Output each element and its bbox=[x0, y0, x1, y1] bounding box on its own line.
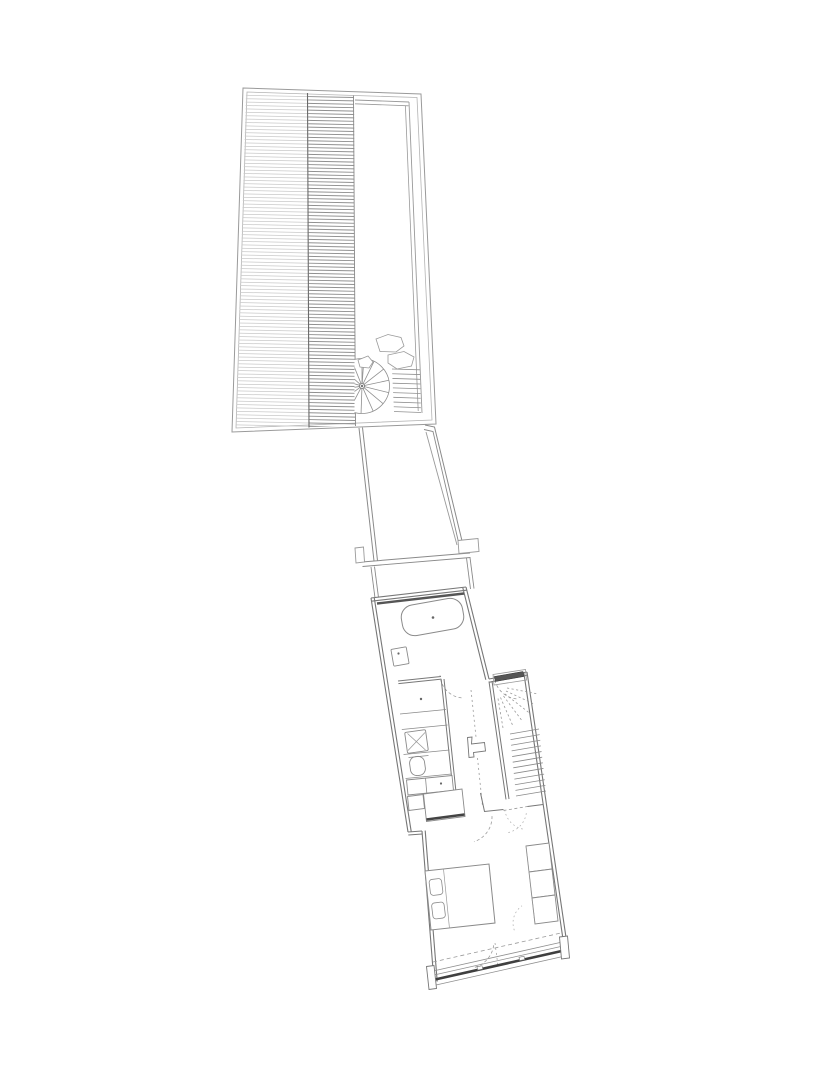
toilet bbox=[409, 756, 426, 777]
corridor-link bbox=[355, 425, 479, 598]
wall-sink-dot bbox=[397, 652, 399, 654]
bathtub-drain-dot bbox=[432, 616, 435, 619]
floor-plan-svg bbox=[0, 0, 840, 1080]
stair-winder-1 bbox=[507, 688, 538, 694]
wall-right-upper bbox=[463, 587, 489, 680]
landing-step-a bbox=[362, 553, 470, 562]
facade-line-1 bbox=[431, 942, 565, 972]
spiral-stair-post-dot bbox=[361, 385, 363, 387]
bedroom bbox=[425, 816, 558, 930]
closet-door-arc bbox=[513, 906, 522, 930]
landing-side-left bbox=[371, 567, 379, 598]
facade-glazing-dark bbox=[433, 950, 566, 980]
stair-bottom-wall-right bbox=[528, 805, 544, 807]
stair-winder-3 bbox=[505, 694, 530, 713]
bed-pillow-1 bbox=[429, 878, 443, 895]
facade-mullion-tick-2 bbox=[519, 956, 525, 960]
corridor-left-wall bbox=[359, 428, 378, 561]
stair-winder-6 bbox=[498, 699, 503, 729]
bed bbox=[425, 864, 495, 930]
stair-bottom-opening bbox=[504, 807, 528, 811]
wall-left-upper bbox=[371, 598, 411, 833]
corridor-right-wall-outer bbox=[425, 425, 463, 545]
closet-cell-3 bbox=[532, 895, 558, 924]
corridor-ramp-edge bbox=[426, 432, 457, 545]
wall-sink bbox=[391, 647, 409, 666]
roof-deck bbox=[230, 88, 436, 432]
south-facade bbox=[427, 933, 570, 990]
closet-cell-1 bbox=[526, 843, 552, 872]
facade-post-left bbox=[427, 966, 437, 990]
closet-cell-2 bbox=[529, 869, 555, 898]
hall-partition bbox=[468, 737, 486, 758]
shower-drain-dot bbox=[420, 698, 422, 700]
hall-dashed-line-1 bbox=[471, 690, 476, 737]
bathroom-bottom-wall bbox=[398, 677, 441, 684]
floor-plan-canvas bbox=[0, 0, 840, 1080]
facade-post-right bbox=[560, 936, 570, 959]
wc-cabinet-dot bbox=[440, 782, 442, 784]
rock-1 bbox=[376, 335, 404, 353]
stair-landing-dark-band bbox=[495, 672, 524, 682]
shelf-line-2 bbox=[402, 725, 448, 730]
wall-step bbox=[408, 831, 422, 835]
hallway bbox=[468, 676, 517, 806]
landing-tab-left bbox=[355, 547, 365, 563]
facade-vertical-dash bbox=[495, 943, 498, 966]
landing-tab-right bbox=[458, 539, 479, 554]
stair-winder-5 bbox=[501, 698, 513, 726]
landing-step-b bbox=[363, 558, 471, 567]
facade-dashed-line bbox=[433, 933, 561, 962]
side-box bbox=[408, 795, 425, 811]
bed-pillow-2 bbox=[431, 902, 445, 919]
landing-side-right bbox=[467, 558, 475, 589]
stair-bottom-wall-left bbox=[481, 793, 504, 812]
staircase bbox=[481, 670, 547, 833]
shelf-line-1 bbox=[400, 710, 446, 715]
stair-left-wall bbox=[489, 681, 509, 799]
door-swing-bedroom bbox=[474, 816, 492, 842]
facade-mullion-tick-1 bbox=[477, 966, 483, 970]
bathroom bbox=[391, 596, 466, 821]
